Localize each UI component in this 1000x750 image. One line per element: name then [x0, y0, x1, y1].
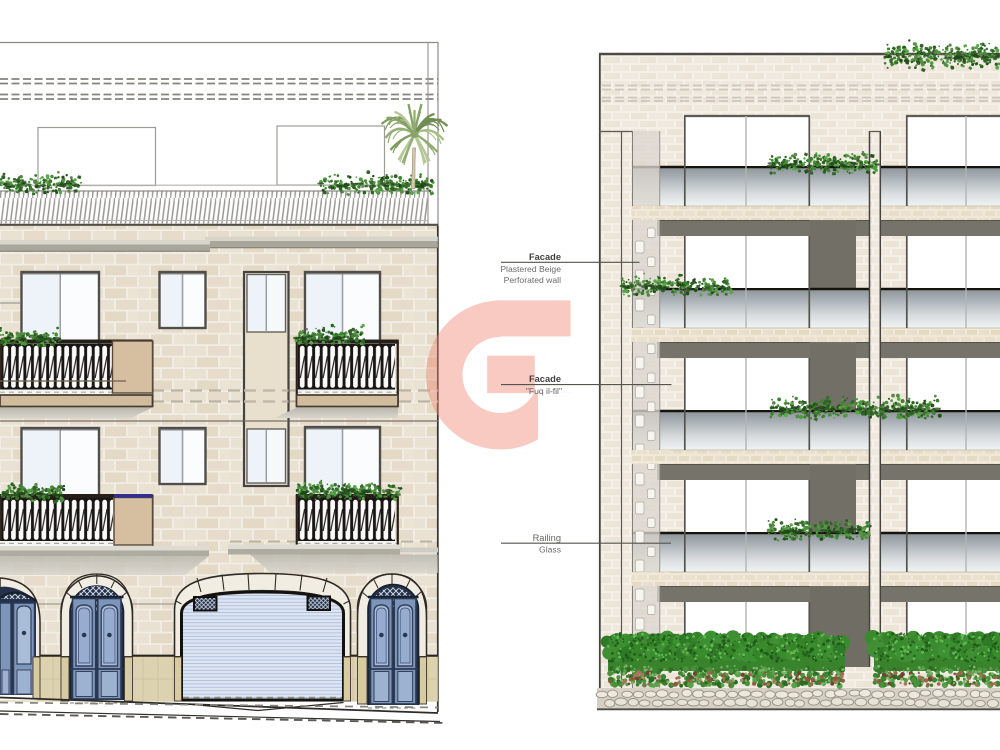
svg-text:Facade: Facade [529, 374, 561, 384]
svg-text:Glass: Glass [539, 545, 561, 555]
svg-text:Railing: Railing [533, 533, 561, 543]
svg-text:Facade: Facade [529, 252, 561, 262]
svg-text:"Fuq il-fil": "Fuq il-fil" [526, 386, 562, 396]
svg-text:Plastered Beige: Plastered Beige [500, 264, 561, 274]
svg-text:Perforated wall: Perforated wall [504, 275, 561, 285]
